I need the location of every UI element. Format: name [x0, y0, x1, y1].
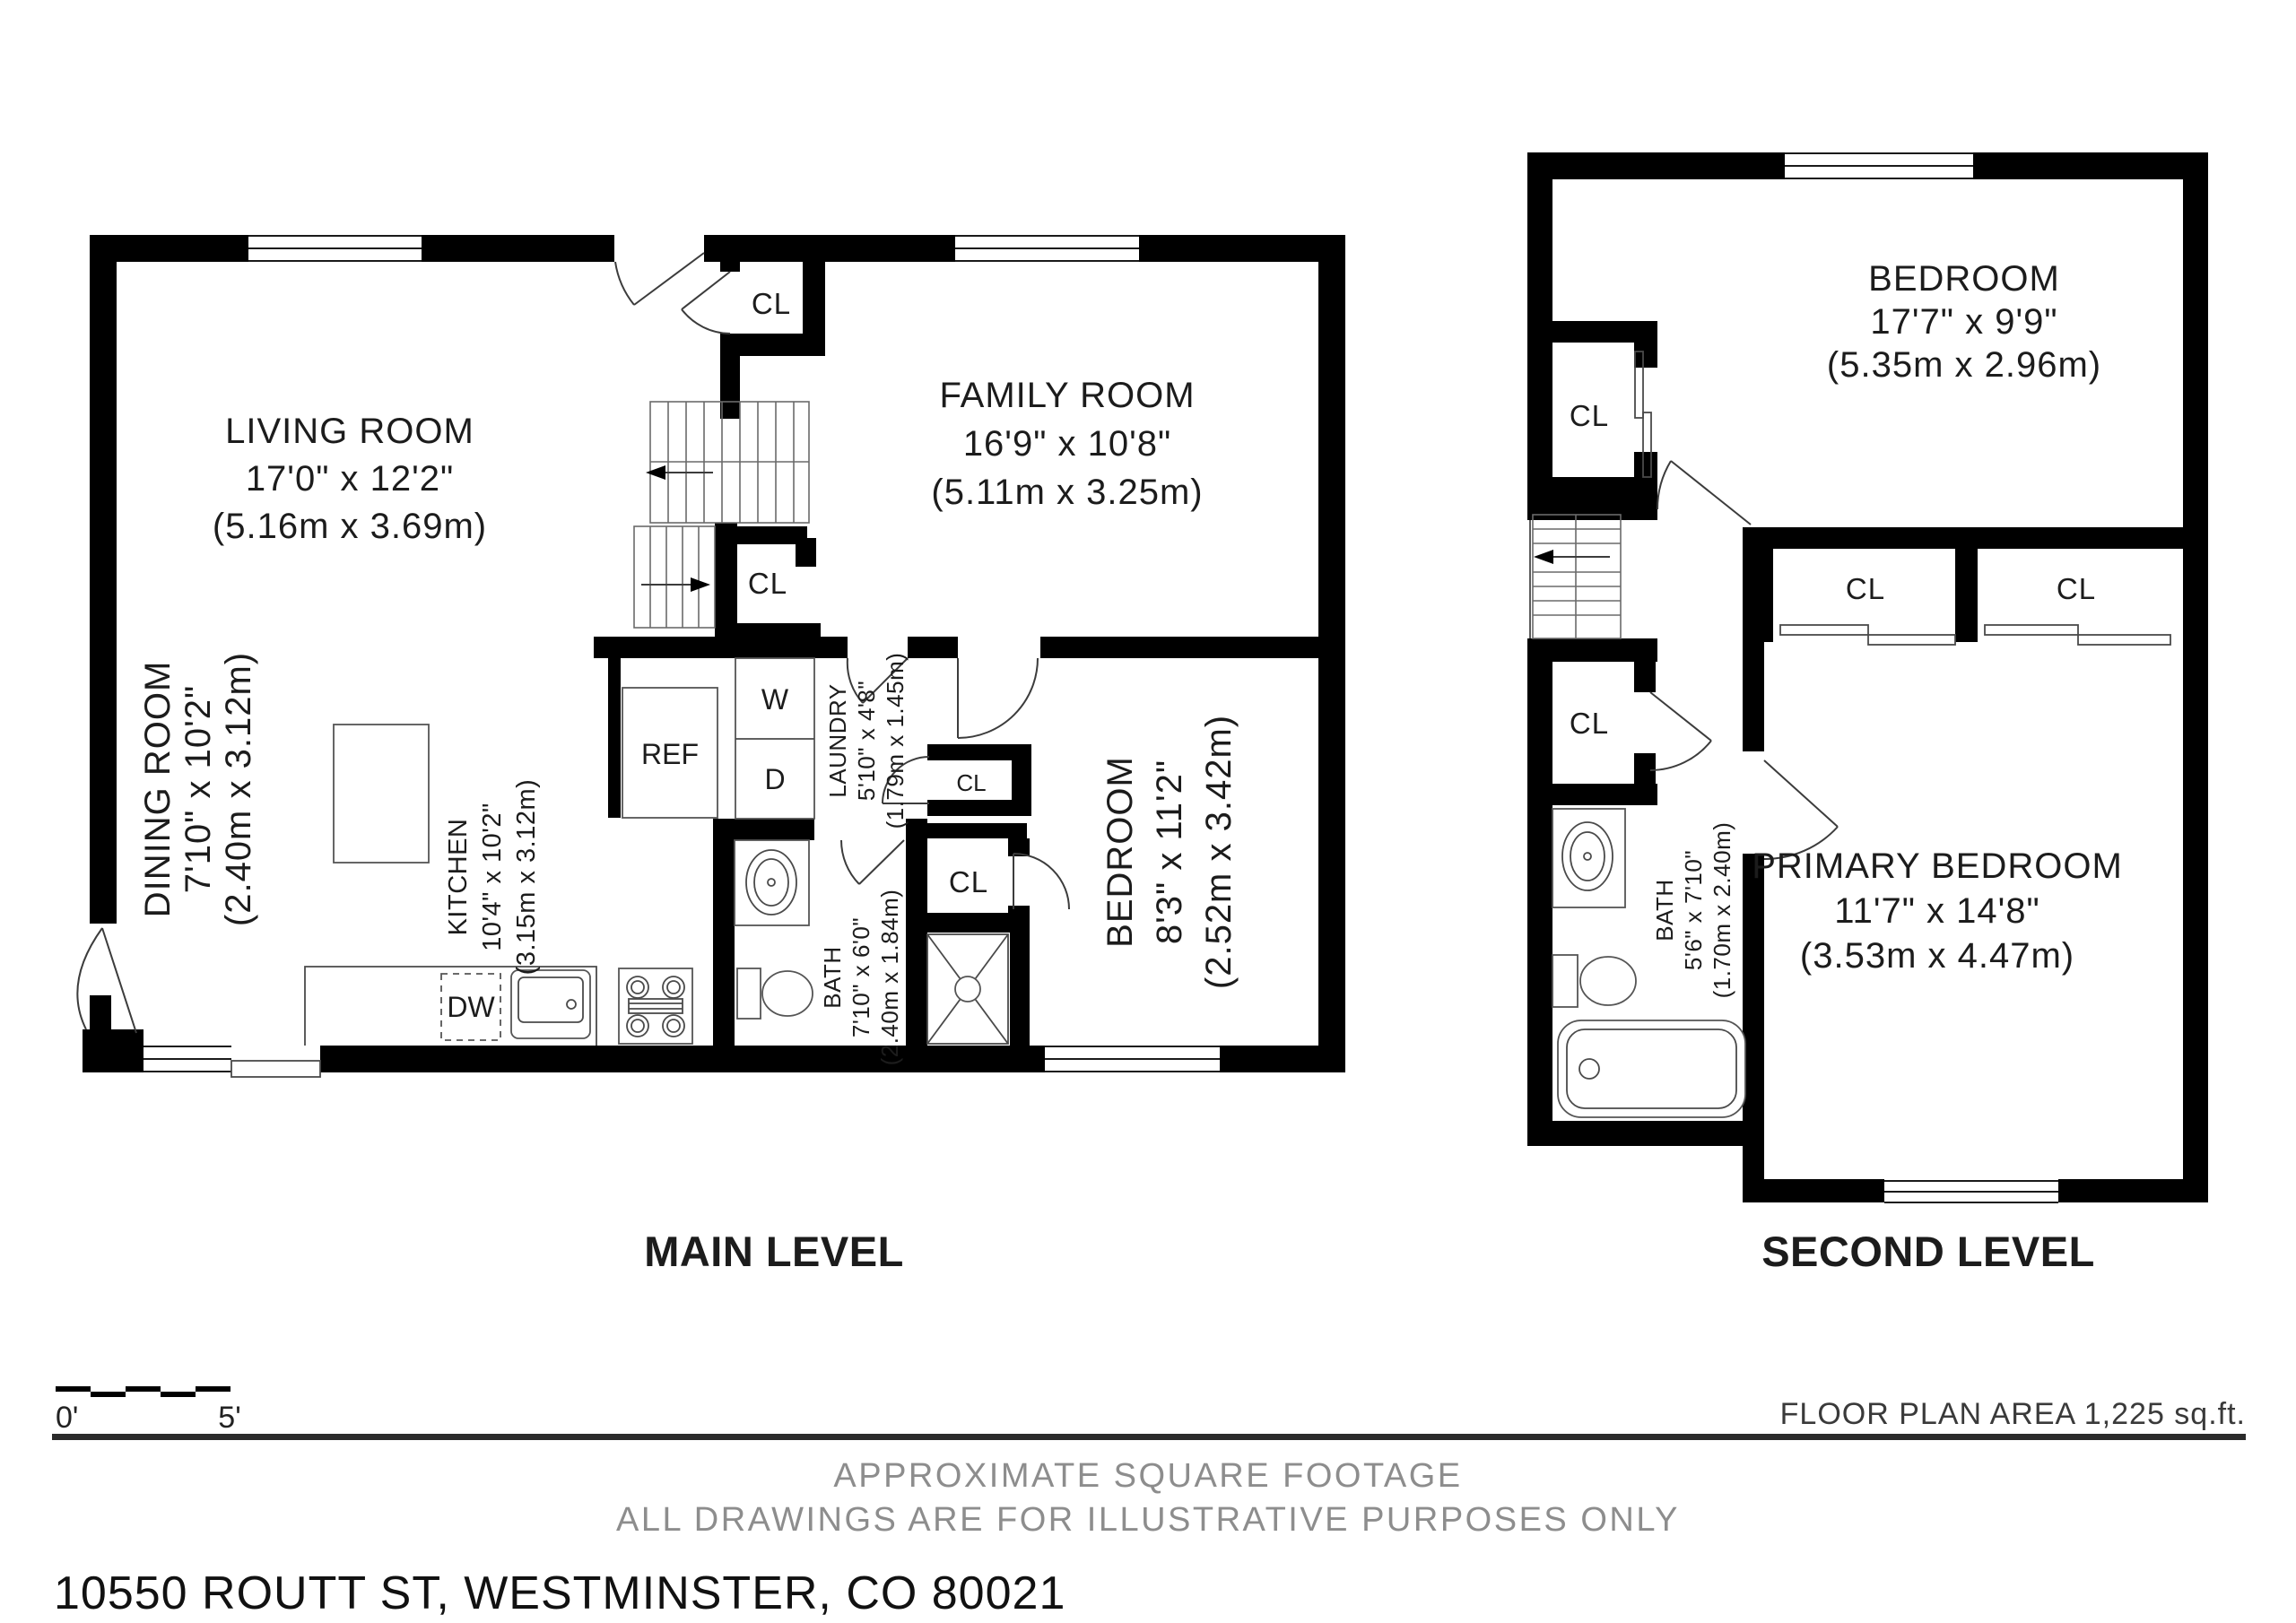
- shower-icon: [927, 934, 1008, 1044]
- hall-closet-label: CL: [956, 769, 986, 796]
- second-bath-dims-metric: (1.70m x 2.40m): [1709, 822, 1735, 999]
- kitchen-dims: 10'4" x 10'2": [478, 803, 507, 951]
- kitchen-dims-metric: (3.15m x 3.12m): [512, 779, 541, 976]
- main-level-title: MAIN LEVEL: [644, 1228, 904, 1275]
- disclaimer-line1: APPROXIMATE SQUARE FOOTAGE: [833, 1457, 1462, 1495]
- second-upper-closet-label: CL: [1570, 399, 1609, 432]
- second-level-stairs: [1533, 515, 1621, 638]
- second-level-plan: BEDROOM 17'7" x 9'9" (5.35m x 2.96m) PRI…: [1527, 152, 2208, 1275]
- living-room-label: LIVING ROOM: [225, 412, 474, 451]
- second-stair-arrow-icon: [1534, 550, 1553, 564]
- second-bedroom-dims-metric: (5.35m x 2.96m): [1827, 345, 2101, 385]
- second-hall-closet-label: CL: [1570, 707, 1609, 740]
- dining-room-label: DINING ROOM: [138, 661, 178, 918]
- bedroom-label: BEDROOM: [1100, 756, 1140, 948]
- laundry-dims: 5'10" x 4'8": [853, 681, 880, 801]
- bedroom-dims: 8'3" x 11'2": [1150, 759, 1189, 944]
- bath-label: BATH: [819, 946, 846, 1008]
- bedroom-window-icon: [1045, 1046, 1220, 1072]
- bath-dims: 7'10" x 6'0": [848, 917, 874, 1037]
- second-bedroom-door-icon: [1657, 461, 1751, 525]
- second-bath-label: BATH: [1651, 879, 1678, 941]
- scale-zero-label: 0': [56, 1401, 78, 1435]
- disclaimer-line2: ALL DRAWINGS ARE FOR ILLUSTRATIVE PURPOS…: [616, 1501, 1680, 1539]
- primary-bedroom-dims-metric: (3.53m x 4.47m): [1800, 936, 2074, 976]
- kitchen-label: KITCHEN: [444, 819, 473, 936]
- family-room-window-icon: [955, 236, 1139, 261]
- band-closet-right-label: CL: [2057, 572, 2096, 605]
- washer-label: W: [761, 683, 789, 716]
- family-room-dims: 16'9" x 10'8": [963, 424, 1171, 464]
- living-room-dims: 17'0" x 12'2": [246, 459, 454, 499]
- property-address: 10550 ROUTT ST, WESTMINSTER, CO 80021: [54, 1567, 1065, 1619]
- primary-bedroom-door-icon: [1764, 760, 1838, 859]
- floor-plan-area-note: FLOOR PLAN AREA 1,225 sq.ft.: [1780, 1397, 2246, 1431]
- bath-door-icon: [841, 840, 904, 884]
- living-room-dims-metric: (5.16m x 3.69m): [213, 507, 487, 546]
- dining-room-dims-metric: (2.40m x 3.12m): [219, 652, 258, 926]
- kitchen-island-icon: [334, 725, 429, 863]
- entry-closet-label: CL: [752, 287, 791, 320]
- second-bath-dims: 5'6" x 7'10": [1680, 850, 1707, 970]
- footer: 0' 5' FLOOR PLAN AREA 1,225 sq.ft. APPRO…: [52, 1386, 2246, 1619]
- second-bedroom-label: BEDROOM: [1868, 259, 2060, 299]
- dining-room-window-icon: [143, 1046, 320, 1077]
- stove-icon: [619, 968, 692, 1044]
- primary-bedroom-window-icon: [1884, 1181, 2058, 1202]
- bedroom-dims-metric: (2.52m x 3.42m): [1199, 715, 1239, 989]
- floor-plan-canvas: LIVING ROOM 17'0" x 12'2" (5.16m x 3.69m…: [0, 0, 2296, 1623]
- dryer-label: D: [764, 763, 785, 795]
- second-bath-sink-icon: [1552, 809, 1625, 907]
- main-level-walls: [83, 235, 1345, 1072]
- kitchen-sink-icon: [511, 970, 590, 1038]
- toilet-icon: [737, 968, 813, 1019]
- main-level-plan: LIVING ROOM 17'0" x 12'2" (5.16m x 3.69m…: [77, 235, 1345, 1275]
- living-room-window-icon: [248, 236, 422, 261]
- entry-closet-door-icon: [682, 272, 730, 334]
- scale-bar-icon: [56, 1386, 230, 1397]
- scale-five-label: 5': [218, 1401, 240, 1435]
- bedroom-closet-label: CL: [949, 865, 988, 898]
- primary-bedroom-label: PRIMARY BEDROOM: [1752, 846, 2123, 886]
- family-room-label: FAMILY ROOM: [939, 376, 1195, 415]
- family-room-dims-metric: (5.11m x 3.25m): [931, 473, 1203, 512]
- primary-bedroom-dims: 11'7" x 14'8": [1834, 891, 2039, 931]
- middle-closet-label: CL: [748, 567, 787, 600]
- bedroom-closet-door-icon: [1013, 854, 1069, 909]
- band-closet-left-label: CL: [1846, 572, 1885, 605]
- second-bedroom-dims: 17'7" x 9'9": [1870, 302, 2057, 342]
- stair-up-arrow-icon: [646, 465, 665, 480]
- laundry-label: LAUNDRY: [824, 683, 851, 797]
- entry-door-icon: [615, 253, 704, 305]
- bath-sink-icon: [735, 840, 809, 925]
- bedroom-door-icon: [958, 658, 1038, 738]
- second-hall-closet-door-icon: [1650, 692, 1711, 770]
- laundry-dims-metric: (1.79m x 1.45m): [882, 653, 909, 829]
- refrigerator-label: REF: [641, 738, 699, 770]
- dishwasher-label: DW: [447, 991, 495, 1023]
- second-bedroom-window-icon: [1785, 153, 1973, 178]
- second-level-title: SECOND LEVEL: [1761, 1228, 2095, 1275]
- footer-divider: [52, 1434, 2246, 1440]
- second-toilet-icon: [1552, 955, 1636, 1007]
- bathtub-icon: [1558, 1020, 1745, 1117]
- dining-room-dims: 7'10" x 10'2": [178, 685, 218, 893]
- stair-down-arrow-icon: [691, 577, 710, 592]
- bath-dims-metric: (2.40m x 1.84m): [876, 890, 903, 1066]
- floor-plan-page: LIVING ROOM 17'0" x 12'2" (5.16m x 3.69m…: [0, 0, 2296, 1623]
